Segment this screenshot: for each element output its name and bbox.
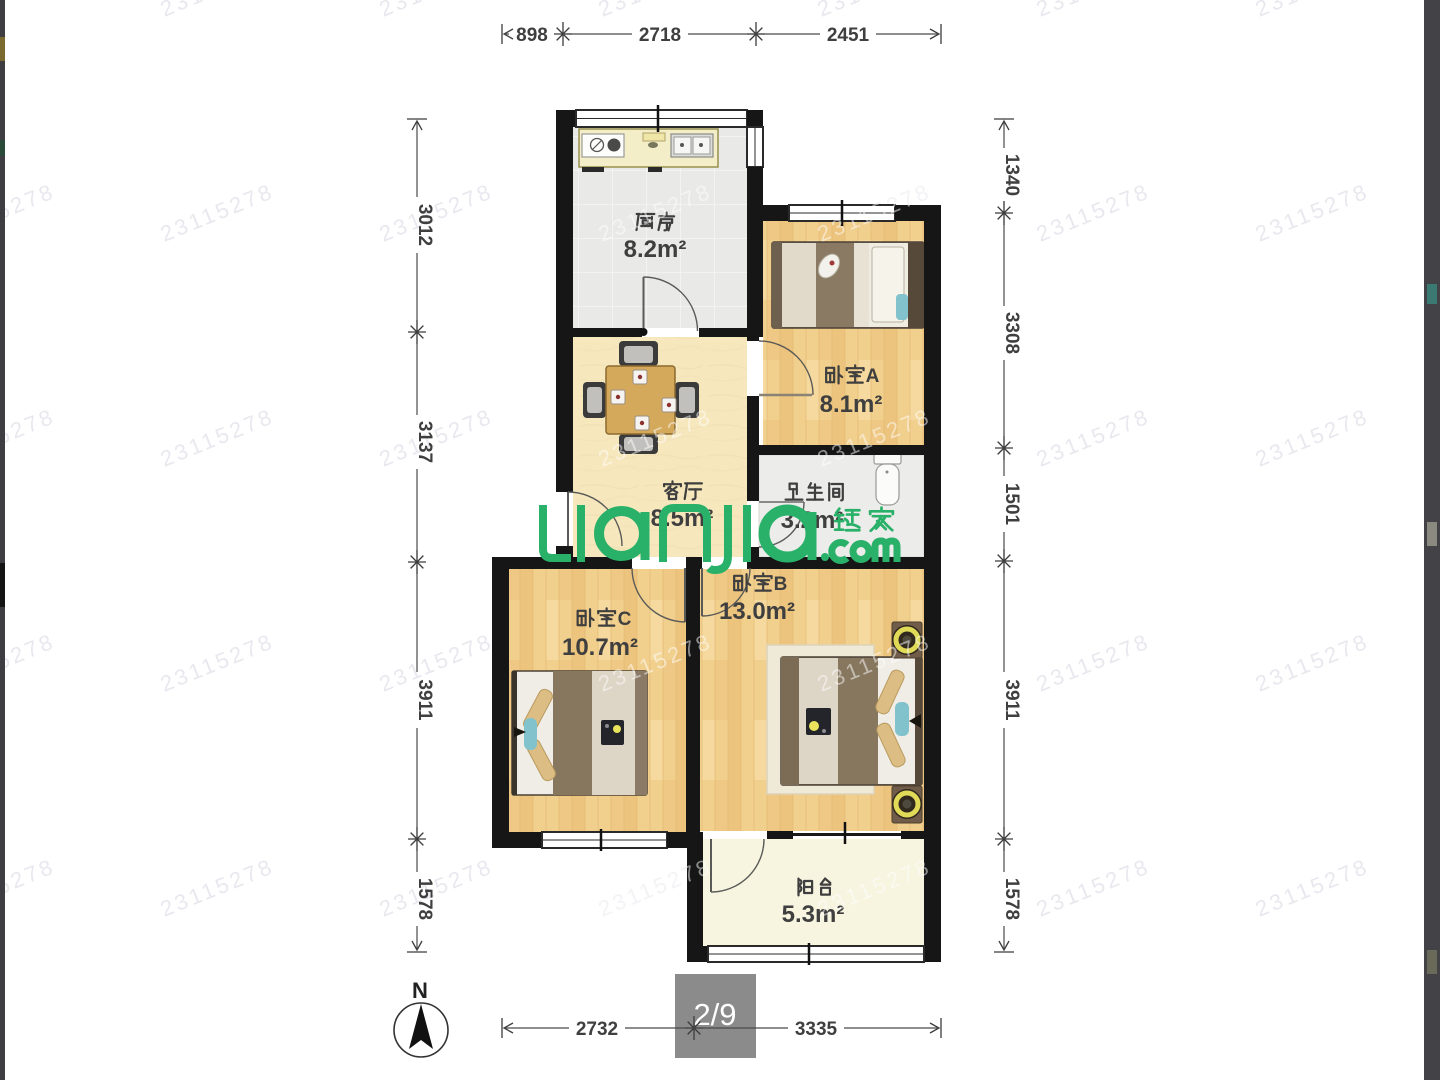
svg-text:13.0m²: 13.0m² [719, 598, 795, 625]
svg-text:10.7m²: 10.7m² [562, 634, 638, 661]
svg-text:23115278: 23115278 [376, 178, 497, 246]
svg-text:23115278: 23115278 [157, 0, 278, 22]
svg-text:3911: 3911 [1001, 679, 1022, 721]
svg-text:2/9: 2/9 [693, 997, 736, 1032]
svg-text:898: 898 [516, 25, 548, 46]
svg-text:2718: 2718 [639, 25, 681, 46]
svg-text:A: A [866, 366, 880, 387]
svg-text:3335: 3335 [795, 1019, 838, 1040]
svg-text:8.2m²: 8.2m² [624, 236, 687, 263]
svg-text:2732: 2732 [576, 1019, 618, 1040]
svg-text:3012: 3012 [414, 204, 435, 246]
svg-text:23115278: 23115278 [0, 178, 59, 246]
svg-text:23115278: 23115278 [1033, 628, 1154, 696]
svg-text:1578: 1578 [414, 878, 435, 920]
svg-text:23115278: 23115278 [376, 403, 497, 471]
svg-text:1340: 1340 [1001, 154, 1022, 196]
svg-text:23115278: 23115278 [1033, 403, 1154, 471]
svg-text:23115278: 23115278 [0, 403, 59, 471]
svg-text:23115278: 23115278 [1252, 0, 1373, 22]
svg-text:8.1m²: 8.1m² [820, 391, 883, 418]
svg-text:23115278: 23115278 [376, 853, 497, 921]
svg-text:23115278: 23115278 [0, 0, 59, 22]
svg-text:N: N [412, 978, 428, 1003]
svg-text:3911: 3911 [414, 679, 435, 721]
svg-text:23115278: 23115278 [376, 628, 497, 696]
svg-text:B: B [774, 574, 788, 595]
svg-text:3308: 3308 [1001, 312, 1022, 354]
svg-text:23115278: 23115278 [157, 403, 278, 471]
svg-text:23115278: 23115278 [1252, 628, 1373, 696]
svg-text:23115278: 23115278 [1252, 403, 1373, 471]
svg-text:23115278: 23115278 [1033, 178, 1154, 246]
svg-text:23115278: 23115278 [157, 853, 278, 921]
svg-text:23115278: 23115278 [814, 0, 935, 22]
svg-text:3137: 3137 [414, 421, 435, 463]
svg-text:23115278: 23115278 [1033, 0, 1154, 22]
svg-text:23115278: 23115278 [0, 853, 59, 921]
svg-text:23115278: 23115278 [376, 0, 497, 22]
svg-text:2451: 2451 [827, 25, 870, 46]
svg-text:23115278: 23115278 [1252, 178, 1373, 246]
svg-text:23115278: 23115278 [0, 0, 59, 22]
svg-text:23115278: 23115278 [1252, 853, 1373, 921]
svg-text:C: C [618, 609, 632, 630]
svg-text:23115278: 23115278 [157, 628, 278, 696]
svg-text:23115278: 23115278 [0, 628, 59, 696]
svg-text:23115278: 23115278 [157, 178, 278, 246]
svg-text:23115278: 23115278 [1033, 853, 1154, 921]
svg-text:1501: 1501 [1001, 483, 1022, 526]
svg-text:23115278: 23115278 [595, 0, 716, 22]
svg-text:1578: 1578 [1001, 878, 1022, 920]
